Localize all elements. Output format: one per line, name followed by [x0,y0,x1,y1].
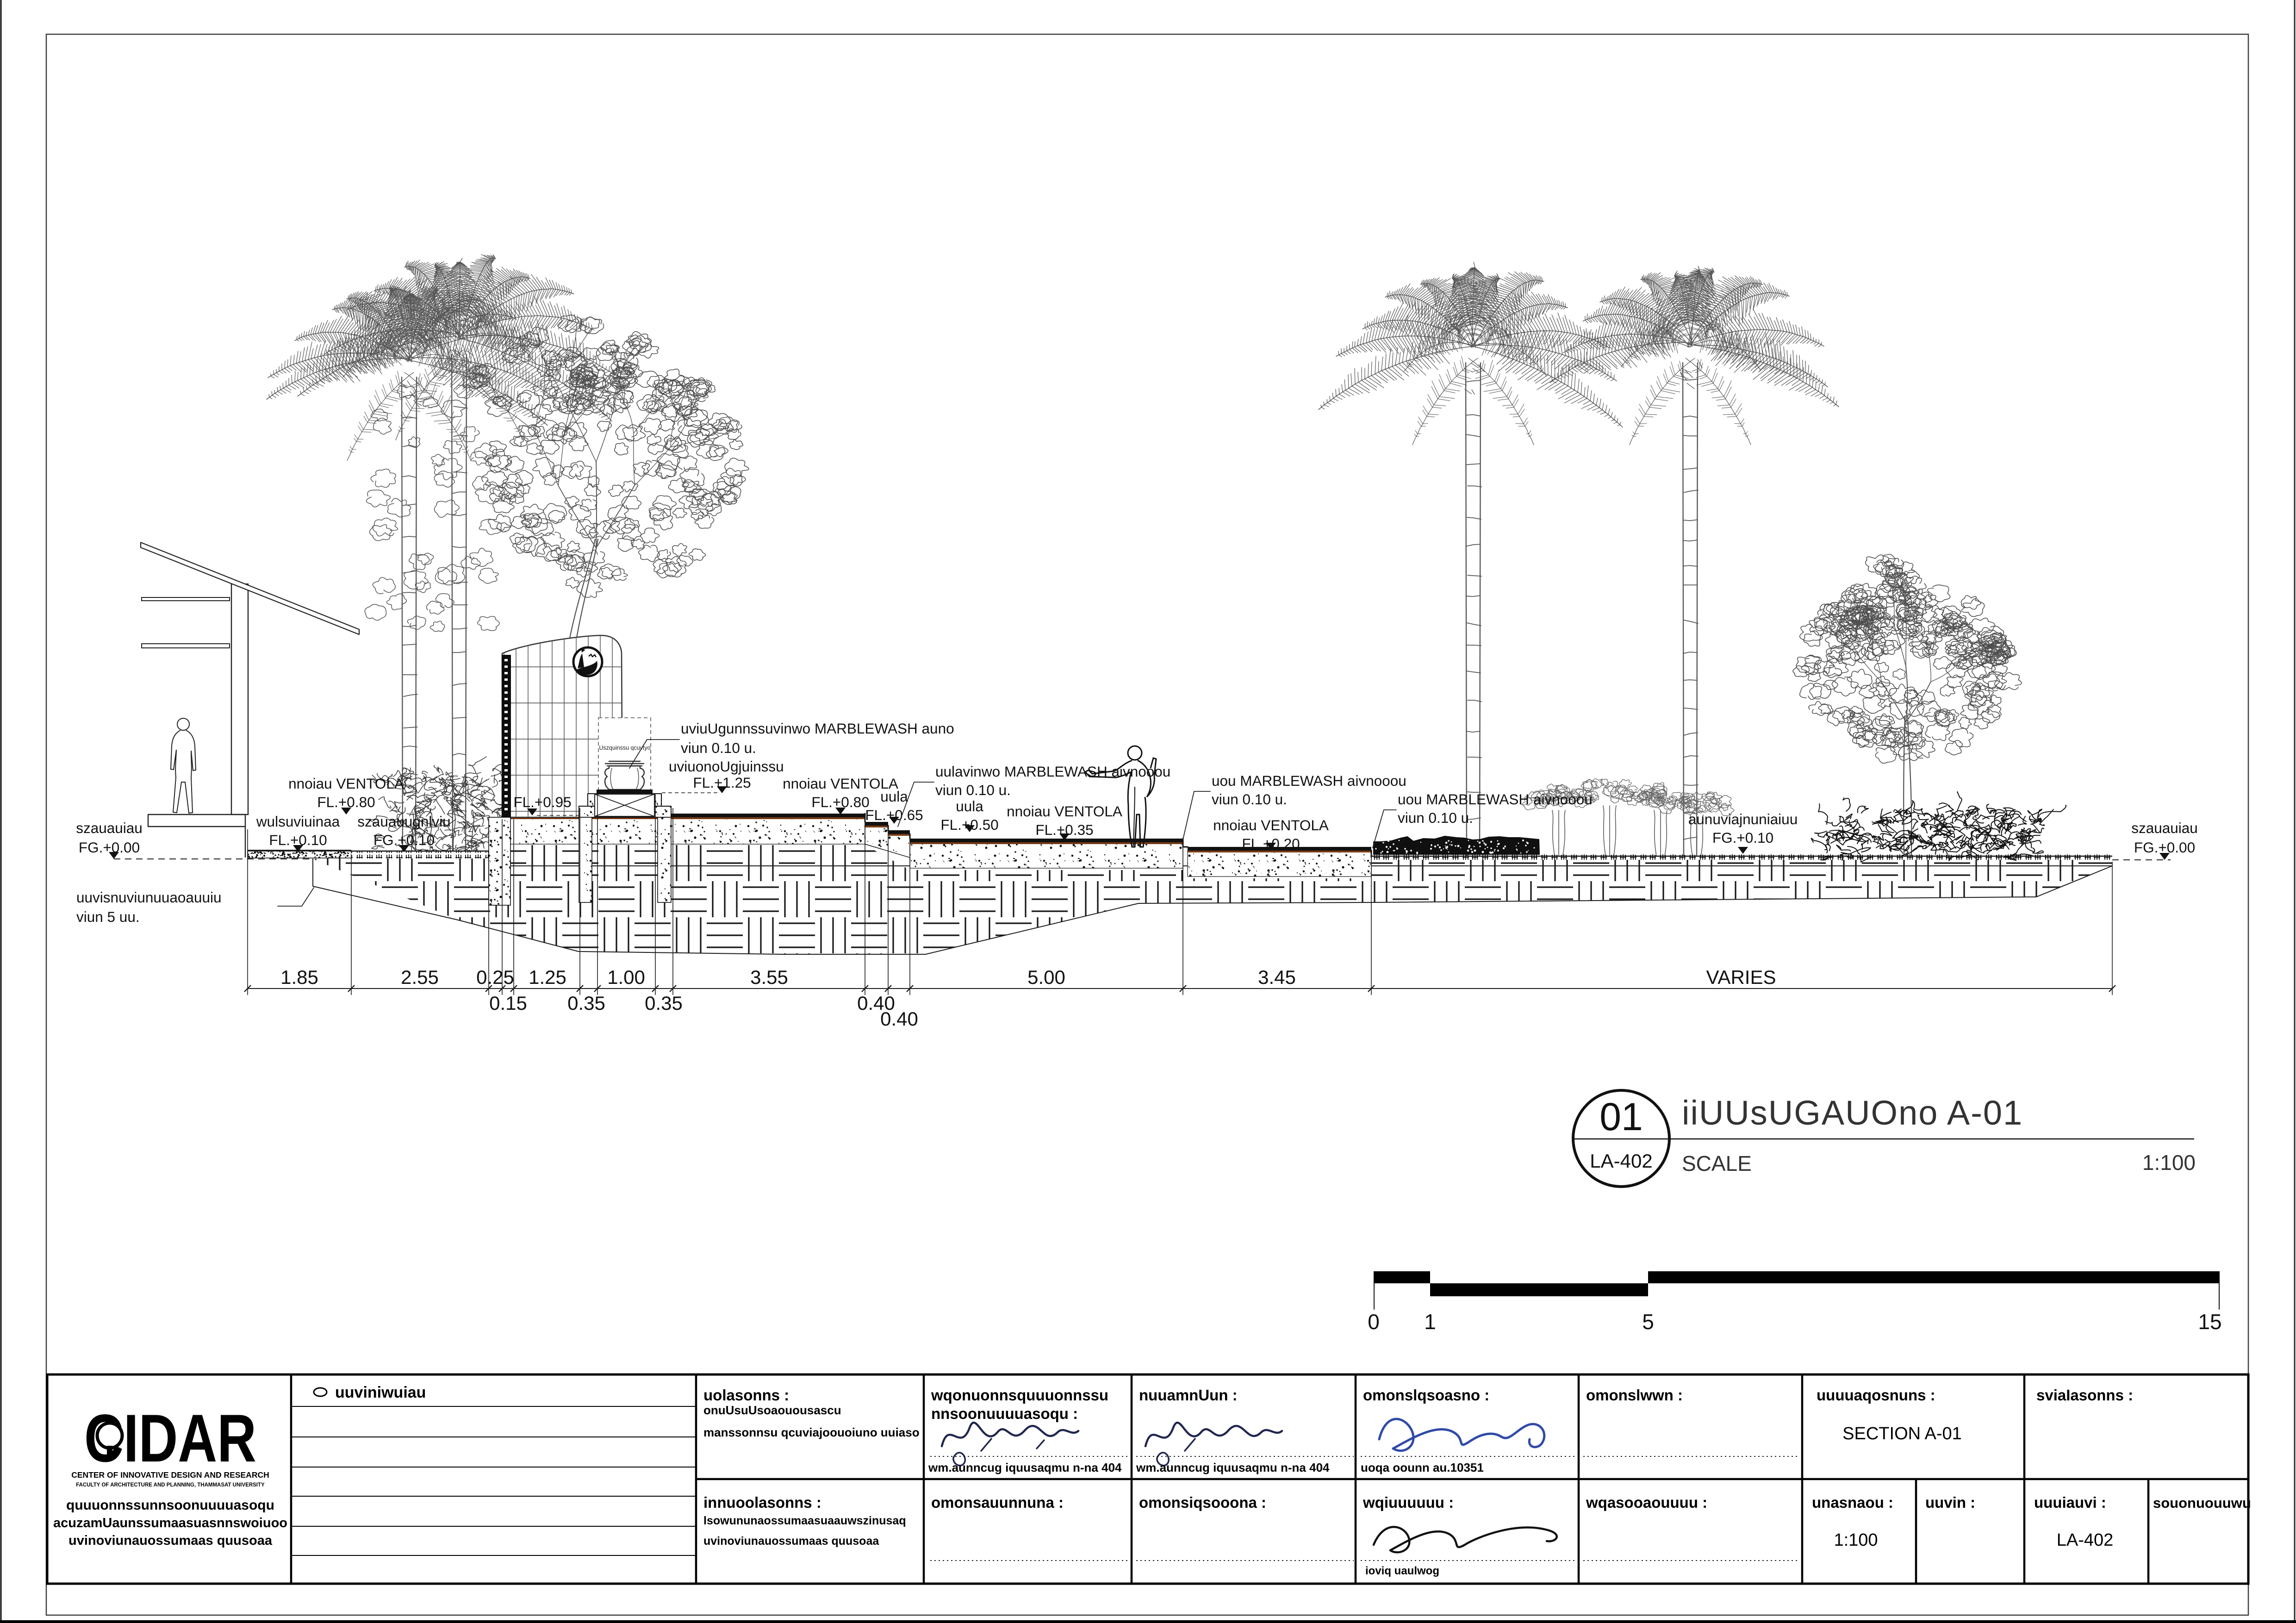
svg-text:0: 0 [1368,1310,1380,1334]
svg-text:viun 0.10 u.: viun 0.10 u. [935,782,1011,798]
svg-text:quuuonnssunnsoonuuuuasoqu: quuuonnssunnsoonuuuuasoqu [66,1498,274,1513]
svg-text:0.25: 0.25 [476,966,514,988]
svg-text:uviuonoUgjuinssu: uviuonoUgjuinssu [669,758,784,775]
svg-text:uviuUgunnssuvinwo MARBLEWASH a: uviuUgunnssuvinwo MARBLEWASH auno [681,720,954,737]
svg-text:uvinoviunauossumaas quusoaa: uvinoviunauossumaas quusoaa [703,1535,879,1548]
svg-text:0.35: 0.35 [567,992,605,1014]
svg-text:1: 1 [1424,1310,1436,1334]
svg-text:1:100: 1:100 [2142,1150,2196,1175]
svg-text:15: 15 [2198,1310,2221,1334]
svg-text:uoqa oounn au.10351: uoqa oounn au.10351 [1361,1461,1484,1474]
svg-text:5: 5 [1642,1310,1654,1334]
svg-text:uuvisnuviunuuaoauuiu: uuvisnuviunuuaoauuiu [76,889,222,906]
svg-text:viun 0.10 u.: viun 0.10 u. [681,740,756,756]
svg-text:nnoiau VENTOLA: nnoiau VENTOLA [288,775,404,792]
svg-text:CENTER OF INNOVATIVE DESIGN AN: CENTER OF INNOVATIVE DESIGN AND RESEARCH [71,1470,269,1480]
svg-text:uou MARBLEWASH aivnooou: uou MARBLEWASH aivnooou [1398,791,1593,808]
svg-text:SECTION A-01: SECTION A-01 [1842,1424,1962,1443]
svg-text:souonuouuwu: souonuouuwu [2153,1495,2251,1511]
svg-text:manssonnsu qcuviajoouoiuno u: manssonnsu qcuviajoouoiuno uuiaso [703,1425,920,1439]
svg-text:LA-402: LA-402 [2057,1530,2114,1550]
svg-text:0.35: 0.35 [645,992,683,1014]
svg-text:FL.+0.95: FL.+0.95 [513,794,571,810]
svg-text:wqonuonnsquuuonnssu: wqonuonnsquuuonnssu [931,1387,1108,1404]
svg-text:SCALE: SCALE [1682,1151,1752,1175]
svg-text:0.15: 0.15 [489,992,527,1014]
svg-text:ioviq uaulwog: ioviq uaulwog [1365,1565,1439,1577]
svg-text:5.00: 5.00 [1027,966,1065,988]
svg-text:1.00: 1.00 [607,966,645,988]
svg-text:uuuuaqosnuns :: uuuuaqosnuns : [1817,1387,1935,1404]
svg-text:wm.aunncug iquusaqmu n-na 40: wm.aunncug iquusaqmu n-na 404 [928,1461,1122,1474]
svg-text:uuviniwuiau: uuviniwuiau [335,1384,426,1401]
svg-text:wqasooaouuuu :: wqasooaouuuu : [1586,1494,1707,1511]
svg-text:lsowununaossumaasuaauwszinusaq: lsowununaossumaasuaauwszinusaq [703,1514,906,1527]
svg-text:innuoolasonns :: innuoolasonns : [703,1494,821,1511]
svg-text:FG.+0.00: FG.+0.00 [2134,839,2195,856]
svg-text:iiUUsUGAUOno A-01: iiUUsUGAUOno A-01 [1682,1094,2023,1132]
svg-text:VARIES: VARIES [1706,966,1776,988]
svg-text:LA-402: LA-402 [1590,1150,1652,1172]
svg-text:FG.+0.00: FG.+0.00 [79,839,140,856]
svg-text:uula: uula [956,798,983,815]
svg-text:nnoiau VENTOLA: nnoiau VENTOLA [1007,803,1122,820]
svg-text:uolasonns :: uolasonns : [703,1387,789,1404]
svg-text:wm.aunncug iquusaqmu n-na 40: wm.aunncug iquusaqmu n-na 404 [1136,1461,1330,1474]
svg-text:omonslwwn :: omonslwwn : [1586,1387,1683,1404]
svg-text:1.85: 1.85 [280,966,318,988]
svg-text:szauauiau: szauauiau [76,820,143,836]
svg-text:omonslqsoasno :: omonslqsoasno : [1363,1387,1489,1404]
svg-text:uuuiauvi :: uuuiauvi : [2034,1494,2106,1511]
svg-text:acuzamUaunssumaasuasnnswoiuoo: acuzamUaunssumaasuasnnswoiuoo [53,1516,287,1530]
svg-text:szauauugnlviu: szauauugnlviu [357,813,450,830]
svg-text:wqiuuuuuu :: wqiuuuuuu : [1363,1494,1454,1511]
svg-text:aunuviajnuniaiuu: aunuviajnuniaiuu [1688,811,1798,827]
svg-text:nuuamnUun :: nuuamnUun : [1139,1387,1238,1404]
svg-text:3.45: 3.45 [1258,966,1296,988]
svg-text:nnsoonuuuuasoqu :: nnsoonuuuuasoqu : [931,1405,1078,1422]
svg-text:uulavinwo MARBLEWASH aivnooou: uulavinwo MARBLEWASH aivnooou [935,763,1170,780]
svg-text:viun 0.10 u.: viun 0.10 u. [1398,809,1473,826]
svg-text:unasnaou :: unasnaou : [1812,1494,1893,1511]
svg-text:nnoiau VENTOLA: nnoiau VENTOLA [1213,817,1329,833]
svg-text:omonsauunnuna :: omonsauunnuna : [931,1494,1064,1511]
svg-text:onuUsuUsoaouousascu: onuUsuUsoaouousascu [703,1403,841,1417]
svg-text:omonsiqsooona :: omonsiqsooona : [1139,1494,1266,1511]
svg-text:wulsuviuinaa: wulsuviuinaa [256,813,340,830]
svg-text:viun 0.10 u.: viun 0.10 u. [1212,791,1287,808]
svg-text:FG.+0.10: FG.+0.10 [1712,829,1773,846]
svg-text:szauauiau: szauauiau [2131,820,2198,836]
svg-text:uvinoviunauossumaas quusoaa: uvinoviunauossumaas quusoaa [68,1533,273,1548]
svg-text:uula: uula [880,788,908,805]
svg-text:sviaIasonns :: sviaIasonns : [2036,1387,2133,1404]
svg-text:uou MARBLEWASH aivnooou: uou MARBLEWASH aivnooou [1212,772,1406,789]
svg-text:viun 5 uu.: viun 5 uu. [76,908,140,925]
svg-text:1.25: 1.25 [529,966,566,988]
svg-text:2.55: 2.55 [401,966,439,988]
svg-text:01: 01 [1599,1095,1643,1138]
svg-text:1:100: 1:100 [1834,1530,1878,1550]
svg-text:FACULTY OF ARCHITECTURE AND PL: FACULTY OF ARCHITECTURE AND PLANNING, TH… [76,1482,265,1488]
svg-text:0.40: 0.40 [880,1008,918,1030]
svg-text:3.55: 3.55 [750,966,788,988]
svg-text:uuvin :: uuvin : [1925,1494,1975,1511]
